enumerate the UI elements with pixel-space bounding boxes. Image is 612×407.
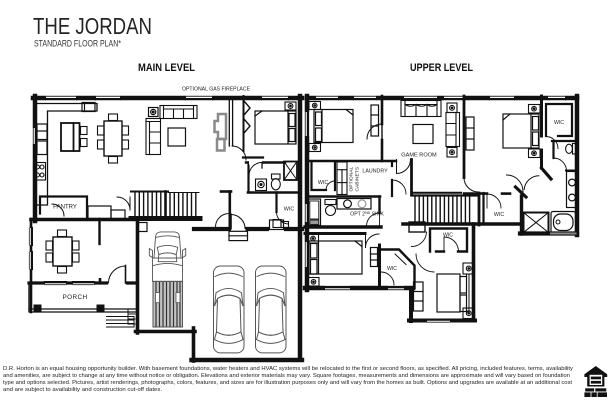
svg-text:WIC: WIC — [494, 212, 504, 218]
svg-text:WIC: WIC — [284, 207, 295, 213]
svg-text:PORCH: PORCH — [62, 294, 87, 301]
svg-text:OPTIONAL GAS FIREPLACE: OPTIONAL GAS FIREPLACE — [182, 87, 250, 93]
svg-text:LAUNDRY: LAUNDRY — [362, 169, 388, 175]
svg-text:MAIN LEVEL: MAIN LEVEL — [138, 62, 195, 74]
svg-text:D.R. Horton is an equal housin: D.R. Horton is an equal housing opportun… — [3, 366, 573, 372]
svg-text:type and options selected. Pic: type and options selected. Pictures, art… — [3, 380, 572, 386]
svg-text:WIC: WIC — [443, 233, 453, 239]
svg-text:and are subject to availabilit: and are subject to availability and cons… — [3, 387, 162, 393]
svg-text:CABINETS: CABINETS — [355, 166, 361, 191]
svg-text:THE JORDAN: THE JORDAN — [33, 13, 152, 39]
svg-text:PANTRY: PANTRY — [53, 205, 77, 211]
svg-text:WIC: WIC — [554, 120, 564, 126]
svg-text:WIC: WIC — [318, 180, 328, 186]
svg-text:GAME ROOM: GAME ROOM — [401, 153, 437, 159]
svg-text:UPPER LEVEL: UPPER LEVEL — [410, 62, 473, 74]
svg-text:WIC: WIC — [387, 266, 397, 272]
svg-text:OPTIONAL: OPTIONAL — [349, 166, 355, 191]
svg-text:and amenities, are subject to: and amenities, are subject to change at … — [3, 373, 570, 379]
svg-text:STANDARD FLOOR PLAN*: STANDARD FLOOR PLAN* — [34, 39, 121, 49]
